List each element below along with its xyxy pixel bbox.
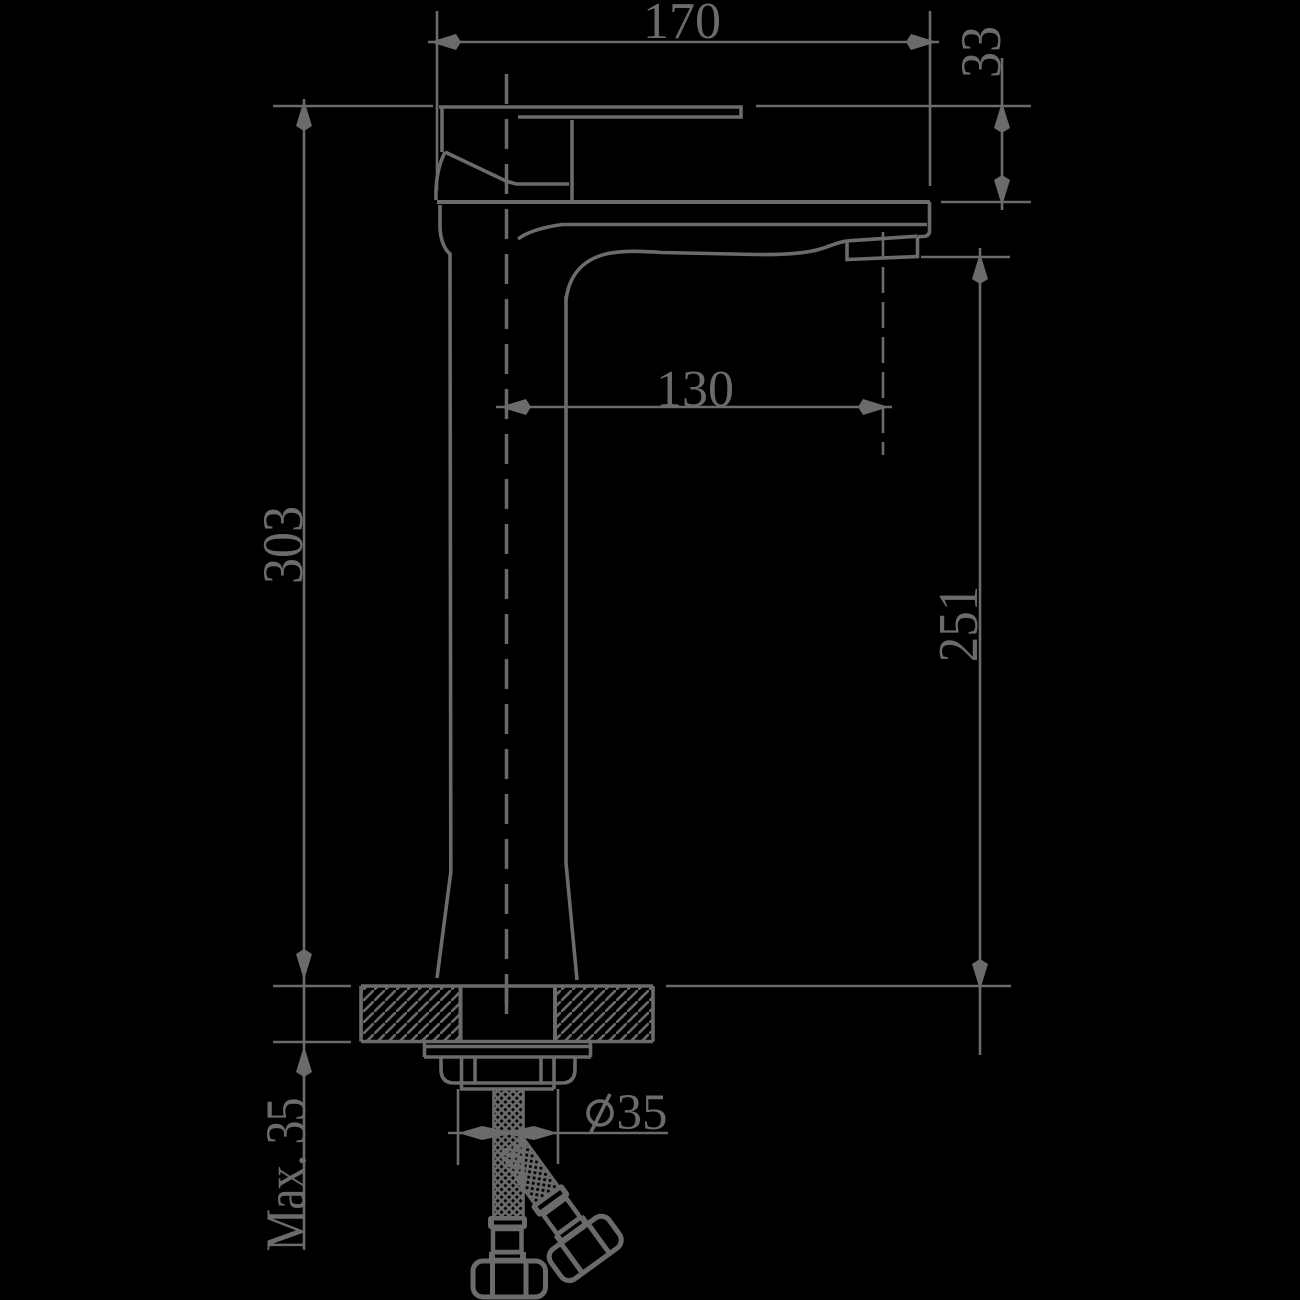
svg-text:303: 303 bbox=[251, 506, 315, 584]
svg-text:130: 130 bbox=[656, 361, 734, 418]
svg-text:Max. 35: Max. 35 bbox=[255, 1099, 318, 1252]
svg-text:251: 251 bbox=[927, 586, 990, 663]
svg-text:35: 35 bbox=[617, 1085, 668, 1141]
svg-text:33: 33 bbox=[949, 26, 1013, 78]
svg-text:170: 170 bbox=[643, 0, 721, 50]
